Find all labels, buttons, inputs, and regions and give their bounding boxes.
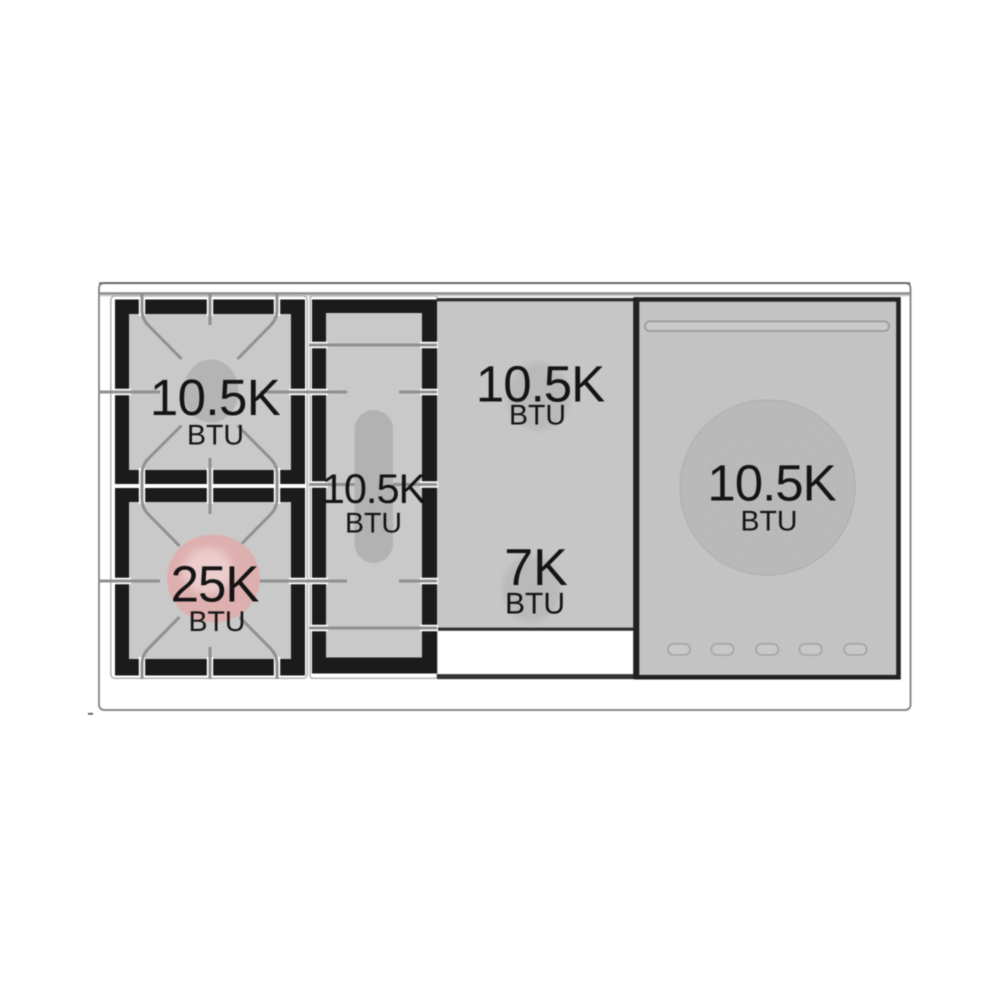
- svg-text:BTU: BTU: [187, 420, 244, 452]
- svg-text:BTU: BTU: [741, 506, 798, 538]
- svg-text:BTU: BTU: [505, 588, 565, 621]
- svg-text:10.5K: 10.5K: [150, 369, 281, 426]
- svg-text:10.5K: 10.5K: [322, 465, 427, 512]
- svg-text:BTU: BTU: [509, 400, 566, 432]
- svg-text:BTU: BTU: [345, 508, 402, 540]
- svg-text:BTU: BTU: [189, 606, 246, 638]
- svg-text:10.5K: 10.5K: [707, 455, 836, 512]
- svg-text:25K: 25K: [171, 556, 260, 613]
